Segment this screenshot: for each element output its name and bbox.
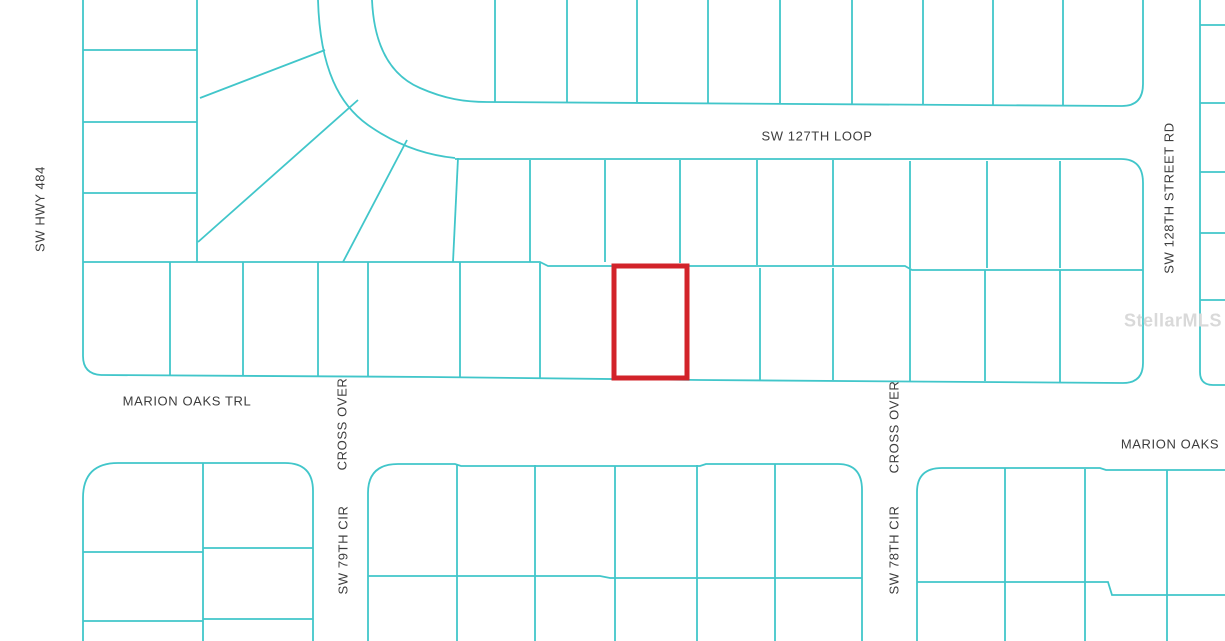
road-sw-127th-loop xyxy=(318,0,1143,158)
highlighted-parcel-outline xyxy=(614,266,687,378)
street-label-sw-78th-cir: SW 78TH CIR xyxy=(887,506,902,595)
top-parcel-band xyxy=(495,0,1063,106)
left-parcel-column xyxy=(83,0,197,375)
street-label-sw-128th-street-rd: SW 128TH STREET RD xyxy=(1162,122,1177,273)
street-label-cross-over-left: CROSS OVER xyxy=(335,378,350,471)
plat-map-screenshot: SW HWY 484 SW 127TH LOOP SW 128TH STREET… xyxy=(0,0,1225,641)
street-label-marion-oaks-right: MARION OAKS xyxy=(1121,437,1219,452)
plat-map-canvas xyxy=(0,0,1225,641)
street-label-sw-79th-cir: SW 79TH CIR xyxy=(336,506,351,595)
upper-middle-parcel-band xyxy=(455,159,1143,363)
street-label-marion-oaks-trl: MARION OAKS TRL xyxy=(123,394,252,409)
street-label-sw-hwy-484: SW HWY 484 xyxy=(33,166,48,252)
bottom-right-block xyxy=(917,468,1225,641)
stellar-mls-watermark: StellarMLS xyxy=(1124,311,1222,332)
bottom-left-block xyxy=(83,463,313,641)
radial-parcel-lines xyxy=(198,50,458,262)
street-label-sw-127th-loop: SW 127TH LOOP xyxy=(761,129,872,144)
bottom-middle-block xyxy=(368,464,862,641)
street-label-cross-over-right: CROSS OVER xyxy=(887,381,902,474)
